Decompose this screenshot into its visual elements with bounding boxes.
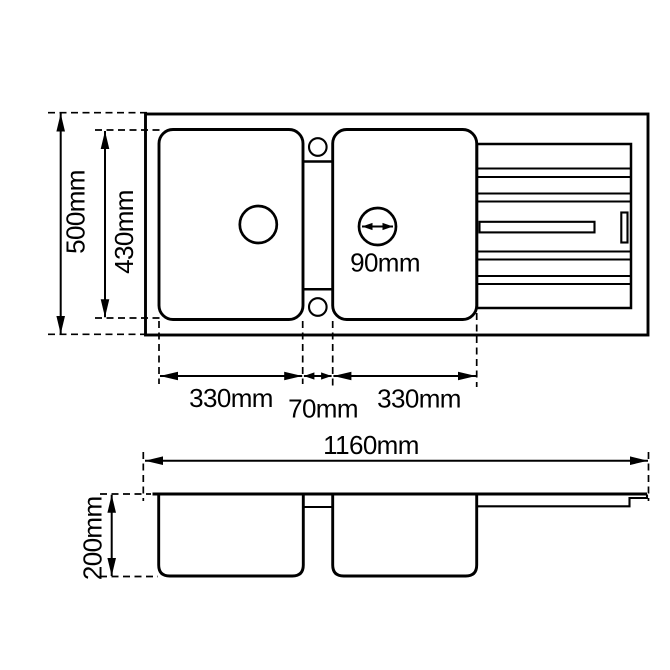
dimension-bowl-length: 430mm: [95, 130, 161, 318]
left-bowl: [159, 130, 303, 320]
dim-label-500mm: 500mm: [61, 170, 91, 254]
tap-hole-top: [309, 138, 327, 156]
dim-label-330mm-left: 330mm: [189, 383, 273, 413]
sink-dimension-drawing: 500mm 430mm 330mm 70mm 330mm 90mm 1160mm: [0, 0, 670, 670]
left-bowl-profile: [159, 494, 304, 576]
dim-label-430mm: 430mm: [109, 190, 139, 274]
top-view: [146, 114, 649, 335]
drainer-board: [477, 144, 631, 308]
drainer-profile: [477, 495, 647, 507]
front-view: 1160mm 200mm: [78, 430, 649, 580]
right-bowl: [333, 130, 477, 320]
dim-label-70mm: 70mm: [288, 394, 358, 424]
right-bowl-profile: [333, 494, 477, 576]
tap-hole-bottom: [309, 298, 327, 316]
drain-hole-left: [240, 206, 277, 243]
dimension-bowl-widths: 330mm 70mm 330mm: [159, 313, 477, 424]
drainer-slot: [480, 222, 595, 233]
dim-label-1160mm: 1160mm: [323, 430, 419, 460]
drainer-end-slot: [621, 213, 627, 243]
dim-label-330mm-right: 330mm: [377, 384, 461, 414]
dim-label-90mm: 90mm: [350, 248, 420, 278]
drawing-canvas: 500mm 430mm 330mm 70mm 330mm 90mm 1160mm: [0, 0, 670, 670]
dim-label-200mm: 200mm: [78, 496, 108, 580]
